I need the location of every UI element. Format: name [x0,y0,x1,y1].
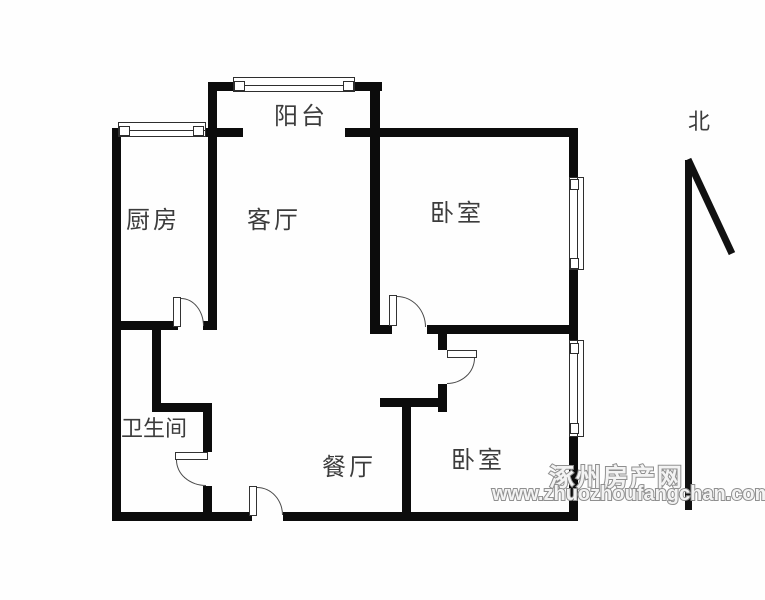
north-label: 北 [688,104,710,136]
room-label-bedroom-north: 卧室 [430,201,484,227]
bedroom-north-window-cap-bottom [570,258,579,269]
kitchen-window-cap-right [193,126,204,136]
wall-bathroom-right-upper [203,412,212,452]
bedroom-south-window-cap-top [570,343,579,354]
wall-bedroom-south-west [402,407,411,521]
bedroom-north-window-cap-top [570,179,579,190]
wall-bedroom-north-bottom [427,325,578,334]
door-arc [181,298,204,326]
door-panel [175,452,208,460]
wall-balcony-bottom-stub [217,128,243,137]
balcony-window-cap-right [343,81,354,91]
wall-kitchen-living-divider [208,82,217,330]
wall-outer-bottom-left [112,512,252,521]
door-panel [249,486,257,516]
door-arc [447,358,475,384]
wall-bathroom-top [152,403,212,412]
kitchen-window-cap-left [119,126,130,136]
north-arrow-diagonal [685,158,735,255]
bedroom-south-window-cap-bottom [570,423,579,434]
wall-kitchen-bottom-left [112,321,178,330]
door-panel [389,295,397,326]
wall-outer-bottom-right [283,512,578,521]
north-arrow-line [685,160,692,510]
wall-bedroom-north-top [345,128,578,137]
balcony-window [233,77,355,92]
balcony-window-cap-left [234,81,245,91]
wall-bedroom-south-top [380,398,447,407]
room-label-kitchen: 厨房 [126,208,180,234]
floor-plan: 阳台 厨房 客厅 卧室 卫生间 餐厅 卧室 北 涿州房产网 www.zhuozh… [0,0,765,600]
door-arc [257,487,283,515]
room-label-balcony: 阳台 [274,104,328,130]
room-label-bedroom-south: 卧室 [451,448,505,474]
door-arc [176,460,206,486]
bedroom-north-window [569,177,584,270]
door-panel [447,350,477,358]
room-label-bathroom: 卫生间 [121,416,187,442]
door-panel [173,297,181,327]
wall-kitchen-bottom-right [203,321,217,330]
wall-living-bottom [370,325,392,334]
room-label-dining: 餐厅 [322,455,376,481]
room-label-living: 客厅 [247,208,301,234]
watermark-site-url: www.zhuozhoufangchan.com [492,483,765,506]
wall-bathroom-left [152,330,161,412]
wall-bathroom-right-lower [203,486,212,521]
door-arc [397,296,426,327]
wall-hall-east-upper [438,325,447,350]
wall-living-bedroom-divider [370,82,380,334]
